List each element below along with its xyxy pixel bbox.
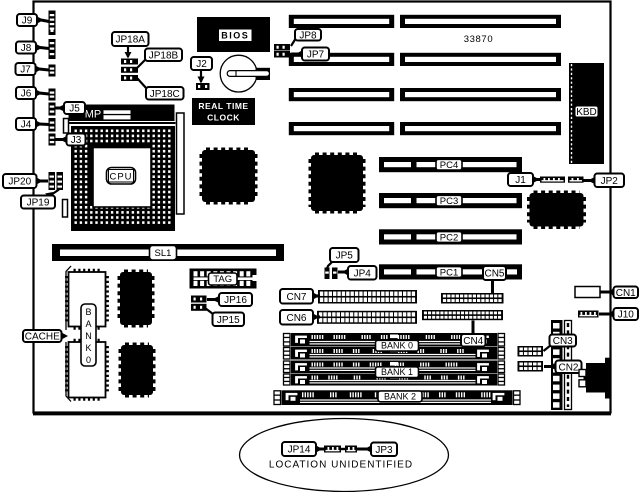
svg-text:J9: J9: [22, 16, 33, 27]
svg-text:JP20: JP20: [8, 177, 31, 188]
svg-text:J7: J7: [20, 65, 31, 76]
svg-text:BIOS: BIOS: [221, 31, 249, 41]
svg-text:J10: J10: [618, 310, 635, 321]
svg-text:REAL TIME: REAL TIME: [198, 101, 248, 111]
svg-text:33870: 33870: [464, 34, 493, 45]
svg-text:CN7: CN7: [286, 292, 306, 303]
svg-text:CPU: CPU: [109, 172, 132, 183]
svg-text:JP5: JP5: [336, 251, 354, 262]
svg-text:JP16: JP16: [224, 295, 247, 306]
svg-text:JP4: JP4: [354, 268, 372, 279]
svg-text:JP3: JP3: [375, 445, 393, 456]
svg-text:N: N: [85, 331, 92, 341]
svg-text:JP2: JP2: [601, 176, 619, 187]
svg-text:J4: J4: [21, 120, 32, 131]
svg-text:PC3: PC3: [440, 196, 458, 207]
svg-text:CN1: CN1: [616, 288, 636, 299]
svg-text:JP14: JP14: [288, 445, 311, 456]
svg-text:0: 0: [86, 355, 91, 365]
svg-text:PC4: PC4: [440, 160, 458, 171]
svg-text:PC1: PC1: [440, 268, 458, 279]
svg-text:BANK 2: BANK 2: [384, 391, 416, 401]
svg-text:JP19: JP19: [27, 198, 50, 209]
svg-text:J5: J5: [69, 104, 80, 115]
svg-text:B: B: [85, 307, 91, 317]
svg-text:A: A: [85, 319, 91, 329]
svg-text:CLOCK: CLOCK: [207, 113, 240, 123]
svg-text:CN2: CN2: [558, 362, 578, 373]
svg-text:J6: J6: [21, 89, 32, 100]
svg-text:SL1: SL1: [155, 248, 172, 259]
svg-text:KBD: KBD: [576, 107, 597, 118]
svg-text:CN3: CN3: [553, 336, 573, 347]
svg-text:LOCATION UNIDENTIFIED: LOCATION UNIDENTIFIED: [269, 460, 413, 471]
svg-text:K: K: [85, 343, 91, 353]
svg-text:BANK 0: BANK 0: [381, 341, 413, 351]
svg-text:JP7: JP7: [307, 50, 325, 61]
svg-text:CACHE: CACHE: [25, 332, 60, 343]
svg-text:J1: J1: [515, 175, 526, 186]
svg-text:CN6: CN6: [286, 313, 306, 324]
svg-text:CN5: CN5: [484, 269, 504, 280]
svg-text:JP18A: JP18A: [116, 35, 146, 46]
svg-text:CN4: CN4: [463, 336, 483, 347]
svg-text:PC2: PC2: [440, 233, 458, 244]
svg-text:MP: MP: [85, 109, 102, 121]
svg-text:JP18C: JP18C: [150, 89, 180, 100]
svg-text:BANK 1: BANK 1: [381, 367, 413, 377]
svg-text:J3: J3: [71, 135, 82, 146]
svg-text:JP8: JP8: [299, 30, 317, 41]
svg-text:TAG: TAG: [213, 274, 232, 285]
svg-text:JP18B: JP18B: [149, 50, 179, 61]
svg-text:JP15: JP15: [217, 315, 240, 326]
svg-text:J8: J8: [21, 43, 32, 54]
svg-text:J2: J2: [196, 59, 207, 70]
